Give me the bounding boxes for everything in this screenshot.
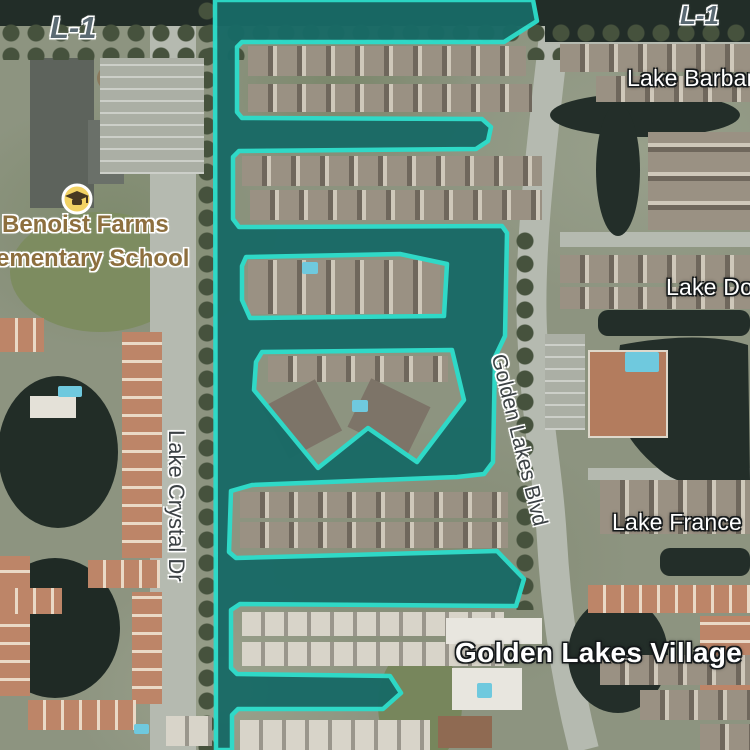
lake-do-label[interactable]: Lake Do [666, 275, 750, 299]
lake-crystal-dr-label: Lake Crystal Dr [165, 430, 188, 582]
canal-label-l1-right: L-1 [680, 2, 719, 29]
satellite-map[interactable]: L-1 L-1 Benoist Farms ementary School La… [0, 0, 750, 750]
lake-france-label[interactable]: Lake France [612, 510, 742, 534]
golden-lakes-village-label[interactable]: Golden Lakes Village [455, 638, 742, 667]
school-label-line2[interactable]: ementary School [0, 246, 189, 271]
lake-barbara-label[interactable]: Lake Barbara [627, 66, 750, 90]
school-label-line1[interactable]: Benoist Farms [2, 212, 169, 237]
canal-label-l1-left: L-1 [50, 12, 97, 45]
